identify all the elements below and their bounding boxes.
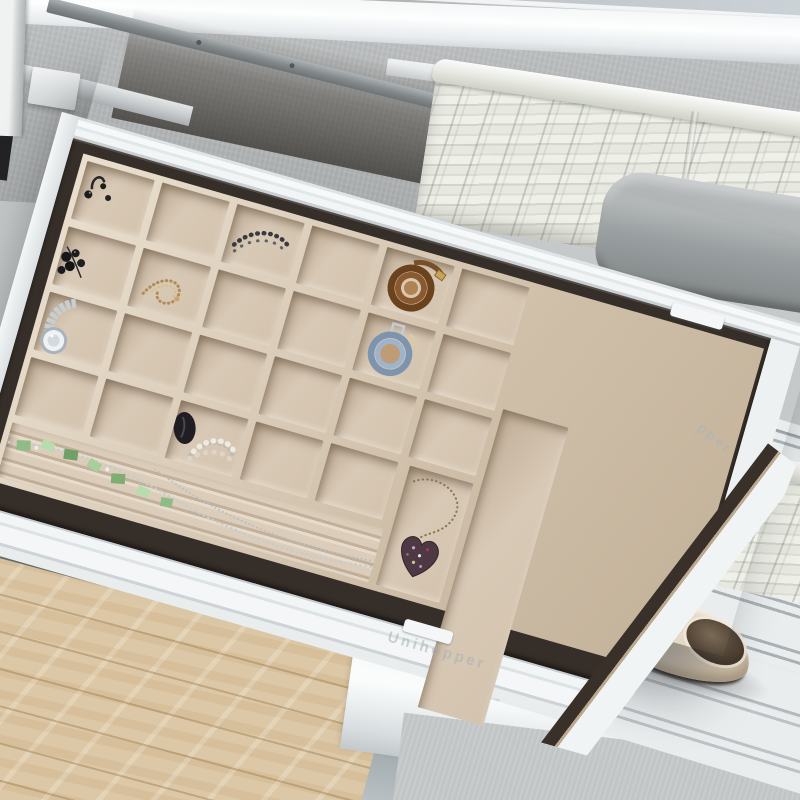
compartment-r2c3 [202,269,286,346]
blue-belt-roll [352,312,436,389]
compartment-r1c4 [296,225,380,302]
compartment-r4c4 [240,422,324,499]
dark-beaded-bracelet [221,204,305,281]
black-bead-cluster [52,226,136,303]
compartment-r3c1 [33,292,117,369]
compartment-r2c6 [427,334,511,411]
compartment-r1c6 [446,268,530,345]
compartment-r4c3 [165,400,249,477]
compartment-r3c2 [108,313,192,390]
silver-watch [33,292,117,369]
gold-chain-pile [127,248,211,325]
compartment-r1c3 [221,204,305,281]
compartment-r1c1 [71,161,155,238]
compartment-r3c3 [183,335,267,412]
pearl-bracelet-and-scrunchie [165,400,249,477]
compartment-r1c5 [371,247,455,324]
compartment-r4c5 [315,443,399,520]
black-earrings [71,161,155,238]
compartment-r4c2 [90,379,174,456]
compartment-r2c4 [277,291,361,368]
compartment-r1c2 [146,182,230,259]
brown-belt-roll [371,247,455,324]
compartment-r4c1 [15,357,99,434]
wall-bracket [27,66,80,110]
compartment-r3c5 [333,378,417,455]
compartment-r3c4 [258,356,342,433]
glide-screw [196,39,202,45]
closet-photo-scene: Unihopper pper [0,0,800,800]
compartment-r2c2 [127,248,211,325]
compartment-r3c6 [408,399,492,476]
compartment-r2c1 [52,226,136,303]
compartment-r2c5 [352,312,436,389]
glide-screw [289,63,295,69]
